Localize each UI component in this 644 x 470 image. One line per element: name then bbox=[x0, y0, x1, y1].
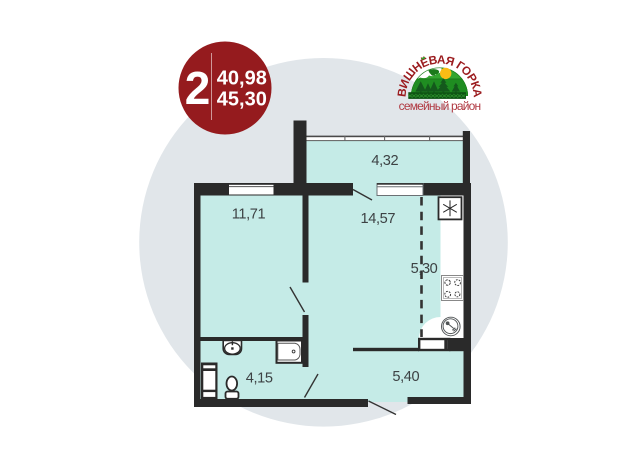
svg-text:5,30: 5,30 bbox=[411, 261, 438, 277]
svg-text:4,15: 4,15 bbox=[246, 371, 273, 387]
svg-text:4,32: 4,32 bbox=[371, 153, 398, 169]
svg-text:11,71: 11,71 bbox=[232, 207, 266, 223]
svg-text:2: 2 bbox=[185, 62, 211, 114]
svg-text:5,40: 5,40 bbox=[392, 369, 419, 385]
svg-text:14,57: 14,57 bbox=[361, 211, 396, 227]
svg-text:45,30: 45,30 bbox=[217, 88, 267, 110]
svg-text:семейный район: семейный район bbox=[399, 99, 481, 113]
svg-text:40,98: 40,98 bbox=[217, 68, 267, 90]
